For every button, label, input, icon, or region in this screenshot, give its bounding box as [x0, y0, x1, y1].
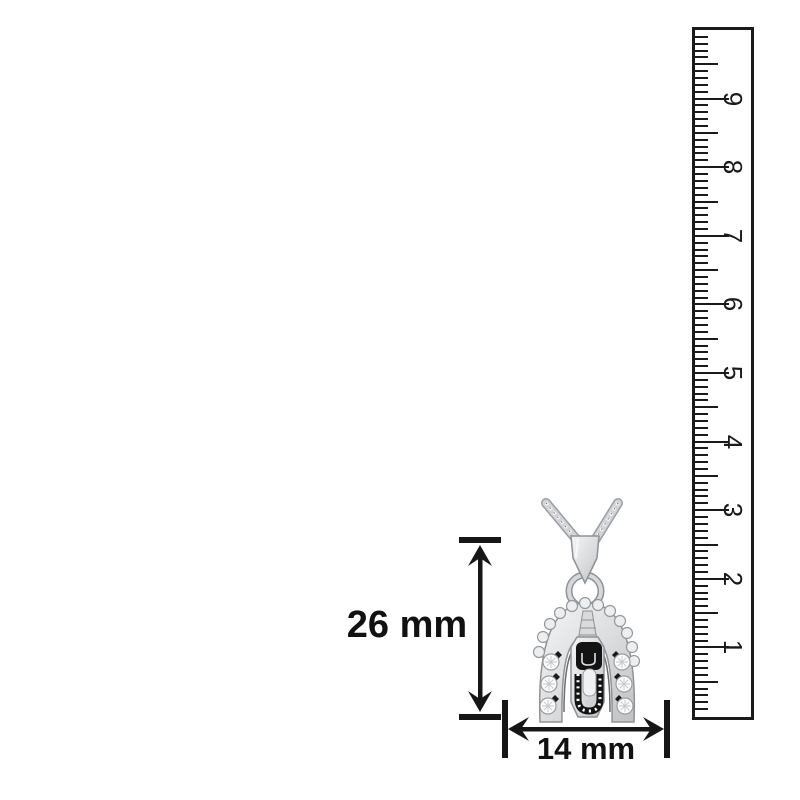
- namam-symbol: [571, 637, 604, 717]
- ruler-tick: [695, 605, 708, 607]
- ruler-tick: [695, 228, 708, 230]
- ruler-tick: [695, 194, 708, 196]
- ruler-number: 8: [718, 152, 748, 182]
- ruler-tick: [695, 489, 708, 491]
- width-label: 14 mm: [528, 731, 644, 767]
- ruler-tick: [695, 152, 708, 154]
- ruler-tick: [695, 255, 708, 257]
- ruler-tick: [695, 358, 708, 360]
- ruler-number: 4: [718, 427, 748, 457]
- ruler-tick: [695, 571, 708, 573]
- ruler-tick: [695, 125, 708, 127]
- ruler-tick: [695, 667, 708, 669]
- ruler-tick: [695, 276, 708, 278]
- ruler-tick: [695, 537, 708, 539]
- ruler-tick: [695, 139, 708, 141]
- ruler-number: 1: [718, 632, 748, 662]
- ruler-tick: [695, 365, 708, 367]
- ruler-tick: [695, 530, 708, 532]
- ruler-tick: [695, 585, 708, 587]
- ruler-tick: [695, 173, 708, 175]
- ruler-tick: [695, 351, 708, 353]
- ruler-tick: [695, 475, 718, 477]
- diagram-svg: [0, 0, 800, 800]
- ruler-tick: [695, 482, 708, 484]
- ruler-tick: [695, 221, 708, 223]
- ruler-tick: [695, 386, 708, 388]
- ruler-tick: [695, 427, 708, 429]
- ruler-tick: [695, 688, 708, 690]
- ruler-number: 3: [718, 495, 748, 525]
- ruler-tick: [695, 399, 708, 401]
- ruler-tick: [695, 269, 718, 271]
- ruler-tick: [695, 495, 708, 497]
- ruler-tick: [695, 36, 708, 38]
- ruler-tick: [695, 516, 708, 518]
- ruler-tick: [695, 393, 708, 395]
- ruler-tick: [695, 214, 708, 216]
- ruler-tick: [695, 674, 708, 676]
- ruler-tick: [695, 461, 708, 463]
- ruler-tick: [695, 201, 718, 203]
- ruler-tick: [695, 262, 708, 264]
- ruler-tick: [695, 379, 708, 381]
- ruler-tick: [695, 468, 708, 470]
- ruler-tick: [695, 132, 718, 134]
- ruler-tick: [695, 249, 708, 251]
- ruler-tick: [695, 592, 708, 594]
- ruler-tick: [695, 70, 708, 72]
- ruler-tick: [695, 640, 708, 642]
- ruler-tick: [695, 598, 708, 600]
- ruler-tick: [695, 310, 708, 312]
- ruler: 123456789: [692, 27, 754, 720]
- ruler-tick: [695, 43, 708, 45]
- pendant-image: [534, 503, 640, 722]
- ruler-tick: [695, 523, 708, 525]
- ruler-tick: [695, 297, 708, 299]
- ruler-tick: [695, 187, 708, 189]
- ruler-tick: [695, 420, 708, 422]
- ruler-tick: [695, 701, 708, 703]
- ruler-number: 9: [718, 84, 748, 114]
- ruler-tick: [695, 77, 708, 79]
- ruler-tick: [695, 91, 708, 93]
- ruler-tick: [695, 290, 708, 292]
- ruler-tick: [695, 612, 718, 614]
- ruler-number: 2: [718, 564, 748, 594]
- ruler-tick: [695, 159, 708, 161]
- ruler-tick: [695, 544, 718, 546]
- ruler-tick: [695, 708, 708, 710]
- ruler-tick: [695, 413, 708, 415]
- ruler-tick: [695, 694, 708, 696]
- height-label: 26 mm: [344, 604, 470, 647]
- ruler-tick: [695, 111, 708, 113]
- ruler-tick: [695, 447, 708, 449]
- ruler-tick: [695, 63, 718, 65]
- ruler-tick: [695, 619, 708, 621]
- ruler-tick: [695, 550, 708, 552]
- ruler-tick: [695, 146, 708, 148]
- ruler-tick: [695, 104, 708, 106]
- ruler-tick: [695, 180, 708, 182]
- ruler-tick: [695, 118, 708, 120]
- ruler-tick: [695, 338, 718, 340]
- ruler-tick: [695, 207, 708, 209]
- ruler-tick: [695, 242, 708, 244]
- ruler-number: 6: [718, 289, 748, 319]
- product-dimension-diagram: 26 mm 14 mm 123456789: [0, 0, 800, 800]
- ruler-tick: [695, 84, 708, 86]
- ruler-scale: 123456789: [695, 30, 751, 717]
- ruler-tick: [695, 345, 708, 347]
- ruler-tick: [695, 681, 718, 683]
- ruler-tick: [695, 56, 708, 58]
- ruler-number: 5: [718, 358, 748, 388]
- ruler-tick: [695, 564, 708, 566]
- ruler-tick: [695, 283, 708, 285]
- ruler-tick: [695, 626, 708, 628]
- ruler-tick: [695, 557, 708, 559]
- ruler-tick: [695, 406, 718, 408]
- ruler-tick: [695, 331, 708, 333]
- ruler-tick: [695, 660, 708, 662]
- ruler-tick: [695, 434, 708, 436]
- ruler-tick: [695, 502, 708, 504]
- ruler-tick: [695, 50, 708, 52]
- ruler-tick: [695, 653, 708, 655]
- ruler-tick: [695, 633, 708, 635]
- ruler-tick: [695, 324, 708, 326]
- ruler-number: 7: [718, 221, 748, 251]
- ruler-tick: [695, 454, 708, 456]
- ruler-tick: [695, 317, 708, 319]
